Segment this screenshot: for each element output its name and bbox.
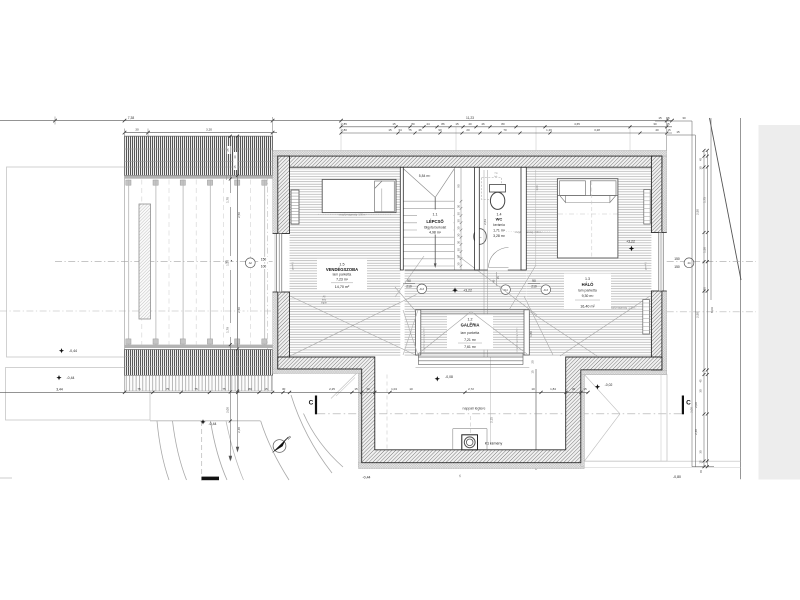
svg-text:1,79: 1,79 <box>225 327 229 333</box>
svg-text:80: 80 <box>248 387 252 391</box>
svg-text:lam parketta: lam parketta <box>461 331 480 335</box>
svg-text:1.1: 1.1 <box>433 213 438 217</box>
svg-text:15: 15 <box>699 460 703 464</box>
svg-text:15: 15 <box>388 128 392 132</box>
svg-text:90: 90 <box>438 128 442 132</box>
svg-text:szegélymagasság 1,40 m: szegélymagasság 1,40 m <box>516 327 518 352</box>
svg-text:1,75: 1,75 <box>703 197 707 203</box>
svg-text:20: 20 <box>466 128 470 132</box>
svg-text:2,48: 2,48 <box>237 427 241 433</box>
svg-text:80: 80 <box>501 122 505 126</box>
svg-text:2,00: 2,00 <box>690 407 694 413</box>
svg-text:7,61 m²: 7,61 m² <box>464 345 477 349</box>
svg-text:30: 30 <box>456 226 460 230</box>
svg-text:30: 30 <box>653 122 657 126</box>
svg-text:30: 30 <box>456 255 460 259</box>
svg-text:2,63: 2,63 <box>483 219 487 225</box>
svg-text:30: 30 <box>366 387 370 391</box>
svg-text:kerámia: kerámia <box>493 223 505 227</box>
svg-text:15: 15 <box>676 130 680 134</box>
svg-text:WC: WC <box>496 217 503 222</box>
svg-text:45: 45 <box>699 379 703 383</box>
svg-text:46: 46 <box>418 128 422 132</box>
svg-text:90: 90 <box>407 279 411 283</box>
svg-text:15: 15 <box>667 128 671 132</box>
svg-text:100: 100 <box>261 264 267 268</box>
svg-text:75: 75 <box>166 387 170 391</box>
svg-text:1,84: 1,84 <box>550 387 556 391</box>
svg-text:GALÉRIA: GALÉRIA <box>461 322 480 327</box>
svg-text:2,50: 2,50 <box>695 312 699 318</box>
svg-text:30: 30 <box>682 116 686 120</box>
svg-text:3,44: 3,44 <box>56 388 63 392</box>
svg-text:2,00: 2,00 <box>694 402 698 408</box>
svg-text:15: 15 <box>455 122 459 126</box>
svg-text:50: 50 <box>229 456 233 460</box>
svg-text:10: 10 <box>409 387 413 391</box>
svg-text:34: 34 <box>398 128 402 132</box>
svg-text:75: 75 <box>137 387 141 391</box>
svg-text:7,38: 7,38 <box>128 116 135 120</box>
svg-text:15: 15 <box>264 387 268 391</box>
svg-text:1.5: 1.5 <box>339 262 344 266</box>
svg-text:90: 90 <box>456 184 460 188</box>
svg-text:30: 30 <box>572 387 576 391</box>
svg-text:1,71 m²: 1,71 m² <box>493 228 506 232</box>
svg-text:szegélymagasság 1,90 m: szegélymagasság 1,90 m <box>339 215 366 217</box>
svg-text:2,48: 2,48 <box>694 429 698 435</box>
svg-text:+3,22: +3,22 <box>463 288 472 292</box>
svg-text:1,80: 1,80 <box>529 331 533 337</box>
svg-text:15: 15 <box>233 165 237 169</box>
svg-text:9,30 m²: 9,30 m² <box>582 294 595 298</box>
svg-text:15: 15 <box>354 387 358 391</box>
svg-text:A2: A2 <box>249 261 253 265</box>
svg-text:30: 30 <box>456 219 460 223</box>
svg-text:30: 30 <box>456 262 460 266</box>
svg-text:210: 210 <box>406 284 412 288</box>
svg-text:90: 90 <box>532 279 536 283</box>
svg-text:30: 30 <box>456 241 460 245</box>
svg-text:2,85: 2,85 <box>341 122 347 126</box>
svg-text:5,84 m²: 5,84 m² <box>419 174 431 178</box>
svg-text:2,80: 2,80 <box>341 128 347 132</box>
svg-text:légtér: légtér <box>321 302 327 305</box>
svg-text:150: 150 <box>674 257 680 261</box>
svg-text:lam parketta: lam parketta <box>578 288 597 292</box>
svg-text:96: 96 <box>224 260 228 263</box>
svg-text:14,70 m²: 14,70 m² <box>335 285 350 289</box>
svg-text:K1 kémény: K1 kémény <box>485 442 503 446</box>
svg-text:1,70: 1,70 <box>703 287 707 293</box>
svg-text:szegélymagasság 1,90 m: szegélymagasság 1,90 m <box>515 232 542 234</box>
svg-text:-0,44: -0,44 <box>363 475 371 479</box>
svg-text:3,20: 3,20 <box>206 128 212 132</box>
svg-text:30: 30 <box>699 389 703 393</box>
svg-text:16,40 m²: 16,40 m² <box>580 304 595 308</box>
svg-text:70: 70 <box>503 128 507 132</box>
svg-text:30: 30 <box>699 166 703 170</box>
svg-text:75: 75 <box>194 387 198 391</box>
svg-text:A13: A13 <box>544 289 549 292</box>
svg-text:-0,44: -0,44 <box>209 422 217 426</box>
svg-text:1,04: 1,04 <box>391 387 397 391</box>
svg-text:210: 210 <box>531 284 537 288</box>
svg-text:3,28: 3,28 <box>594 128 600 132</box>
svg-text:11,23: 11,23 <box>466 116 474 120</box>
svg-text:nappali légtere: nappali légtere <box>463 407 486 411</box>
svg-text:pm=45: pm=45 <box>645 262 648 270</box>
svg-text:C: C <box>309 400 314 407</box>
svg-text:1,06: 1,06 <box>535 185 539 191</box>
svg-text:2,72: 2,72 <box>468 387 474 391</box>
svg-text:30: 30 <box>699 450 703 454</box>
svg-text:1,26: 1,26 <box>546 128 552 132</box>
svg-text:-0,02: -0,02 <box>605 383 613 387</box>
svg-text:20: 20 <box>530 360 534 364</box>
svg-text:szegélymagasság 1,30 m: szegélymagasság 1,30 m <box>609 307 636 309</box>
svg-text:tölgyfa burkolat: tölgyfa burkolat <box>424 226 446 230</box>
svg-text:-0,44: -0,44 <box>67 376 75 380</box>
svg-text:15: 15 <box>583 387 587 391</box>
svg-text:VENDÉGSZOBA: VENDÉGSZOBA <box>326 267 358 272</box>
svg-text:30: 30 <box>456 205 460 209</box>
svg-text:45: 45 <box>699 470 703 473</box>
svg-text:-0,08: -0,08 <box>445 375 453 379</box>
svg-text:2,50: 2,50 <box>237 212 241 218</box>
svg-text:30: 30 <box>456 212 460 216</box>
svg-text:LÉPCSŐ: LÉPCSŐ <box>426 219 444 224</box>
svg-text:44: 44 <box>688 261 691 265</box>
svg-text:30: 30 <box>456 248 460 252</box>
svg-text:86: 86 <box>441 122 445 126</box>
svg-text:7,21 m²: 7,21 m² <box>464 338 477 342</box>
svg-text:40: 40 <box>468 122 472 126</box>
svg-text:30: 30 <box>282 387 286 391</box>
svg-text:pm=45: pm=45 <box>292 262 295 270</box>
svg-text:46: 46 <box>481 122 485 126</box>
svg-text:45: 45 <box>699 158 703 162</box>
svg-text:75: 75 <box>408 128 412 132</box>
svg-text:2,50: 2,50 <box>237 307 241 313</box>
svg-text:HÁLÓ: HÁLÓ <box>582 282 595 287</box>
svg-text:75: 75 <box>222 387 226 391</box>
svg-text:150: 150 <box>674 265 680 269</box>
svg-text:4,65: 4,65 <box>574 122 580 126</box>
svg-text:25: 25 <box>226 148 230 152</box>
svg-text:44: 44 <box>426 122 430 126</box>
svg-text:8,06: 8,06 <box>710 307 714 313</box>
svg-text:15: 15 <box>658 116 662 120</box>
svg-text:15: 15 <box>530 370 534 374</box>
svg-text:3,28 m²: 3,28 m² <box>493 234 506 238</box>
svg-text:4,98 m²: 4,98 m² <box>429 231 442 235</box>
svg-text:1.3: 1.3 <box>585 277 590 281</box>
svg-text:30: 30 <box>233 155 237 159</box>
svg-text:80: 80 <box>411 122 415 126</box>
svg-text:7,23 m²: 7,23 m² <box>336 278 349 282</box>
svg-text:15: 15 <box>666 116 670 120</box>
svg-text:2,50: 2,50 <box>695 209 699 215</box>
svg-text:2,25: 2,25 <box>329 387 335 391</box>
svg-text:15: 15 <box>392 122 396 126</box>
svg-text:2,00: 2,00 <box>225 407 229 413</box>
svg-text:30: 30 <box>456 233 460 237</box>
svg-text:10: 10 <box>531 387 535 391</box>
svg-text:2,15: 2,15 <box>490 417 494 423</box>
svg-text:1.2: 1.2 <box>468 318 473 322</box>
svg-text:A13: A13 <box>420 288 425 291</box>
svg-text:-0,80: -0,80 <box>673 475 681 479</box>
svg-text:C: C <box>686 400 691 407</box>
svg-text:30: 30 <box>135 128 139 132</box>
svg-text:fel:: fel: <box>495 176 498 178</box>
svg-text:lam parketta: lam parketta <box>333 273 352 277</box>
svg-text:+3,22: +3,22 <box>626 240 635 244</box>
svg-text:-0,44: -0,44 <box>69 349 77 353</box>
svg-text:1,50: 1,50 <box>703 247 707 253</box>
svg-text:1,70: 1,70 <box>225 197 229 203</box>
svg-text:150: 150 <box>261 258 267 262</box>
svg-text:40: 40 <box>655 128 659 132</box>
